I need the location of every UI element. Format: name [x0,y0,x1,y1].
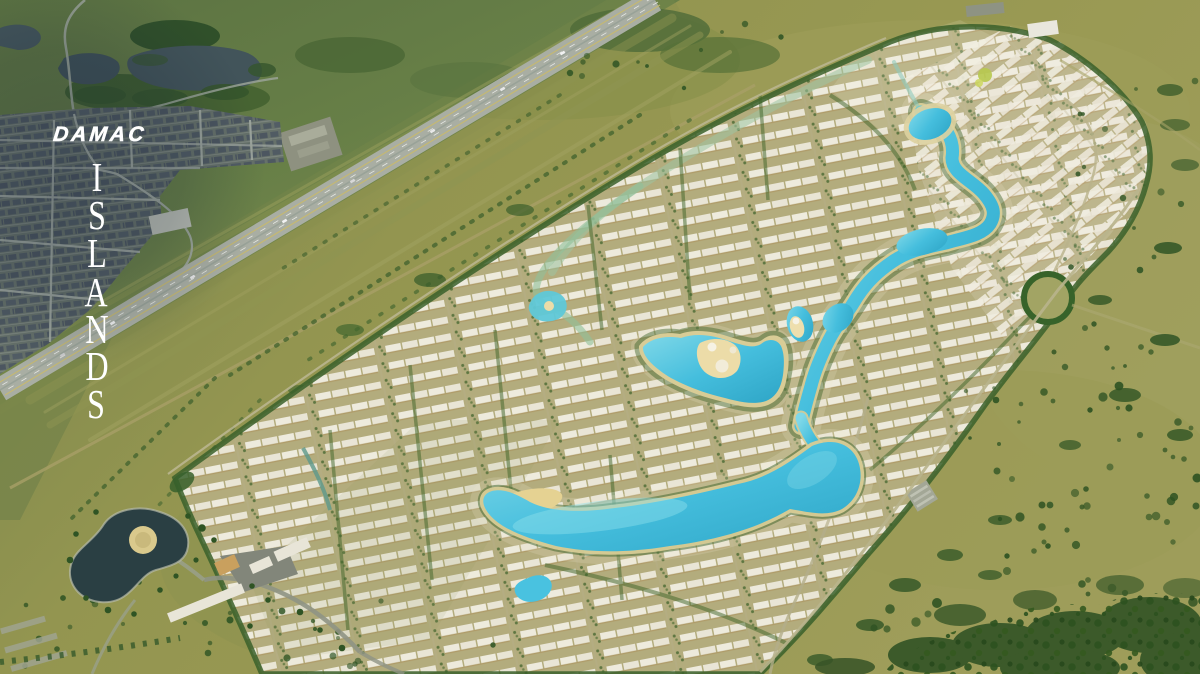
svg-text:DAMAC: DAMAC [52,123,148,146]
svg-text:S: S [87,381,105,427]
